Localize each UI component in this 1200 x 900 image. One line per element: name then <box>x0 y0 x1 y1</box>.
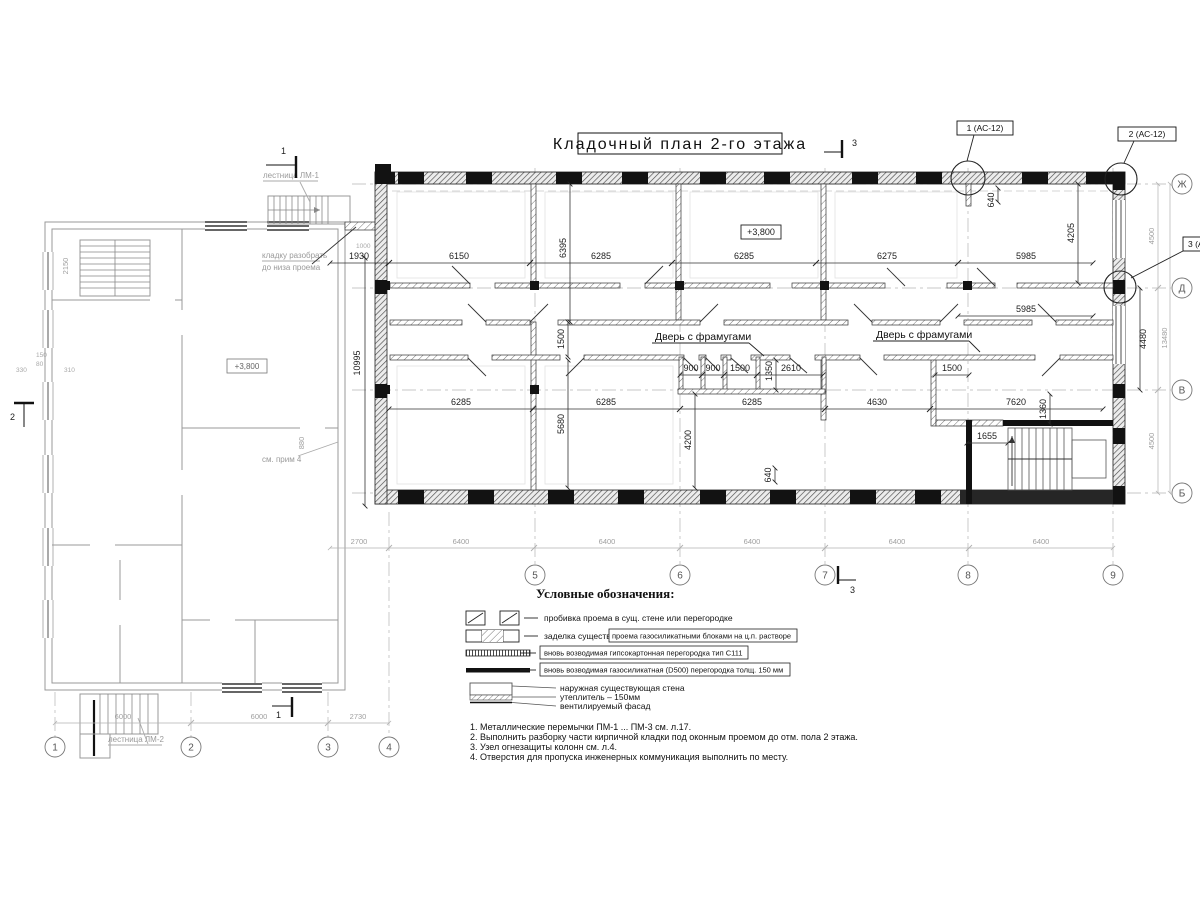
see-note-text: см. прим 4 <box>262 455 302 464</box>
dim-5985-2: 5985 <box>1016 304 1036 314</box>
dim-6400-5: 6400 <box>1033 537 1050 546</box>
section-3-top: 3 <box>852 138 857 148</box>
dim-6150: 6150 <box>449 251 469 261</box>
note-3: 3. Узел огнезащиты колонн см. л.4. <box>470 742 617 752</box>
dim-6000-1: 6000 <box>115 712 132 721</box>
legend-row2-text: заделка существ. <box>544 631 613 641</box>
dim-900b: 900 <box>705 363 720 373</box>
axis-v: В <box>1179 386 1186 397</box>
dim-1350: 1350 <box>764 361 774 381</box>
note-1: 1. Металлические перемычки ПМ-1 ... ПМ-3… <box>470 722 691 732</box>
legend-row4-boxed: вновь возводимая газосиликатная (D500) п… <box>544 666 783 675</box>
dim-4500-2: 4500 <box>1147 433 1156 450</box>
axis-3: 3 <box>325 743 331 754</box>
callout-2: 2 (АС-12) <box>1129 129 1166 139</box>
dim-6400-1: 6400 <box>453 537 470 546</box>
door-label-right-text: Дверь с фрамугами <box>876 329 972 341</box>
main-floor-plan: +3,800 Дверь с фрамугами Дверь с фрамуга… <box>375 164 1125 504</box>
dim-4205: 4205 <box>1066 223 1076 243</box>
dim-330: 330 <box>16 367 27 374</box>
title-text: Кладочный план 2-го этажа <box>553 136 807 153</box>
axis-5: 5 <box>532 571 538 582</box>
dim-6395: 6395 <box>558 238 568 258</box>
axis-9: 9 <box>1110 571 1116 582</box>
drawing-title: Кладочный план 2-го этажа <box>553 133 807 154</box>
demolish-text-1: кладку разобрать <box>262 251 327 260</box>
axis-b: Б <box>1179 489 1186 500</box>
dim-6285-m2: 6285 <box>596 397 616 407</box>
axis-bubbles-bottom-main: 5 6 7 8 9 <box>525 565 1123 585</box>
door-label-left: Дверь с фрамугами <box>652 331 764 356</box>
dim-6275: 6275 <box>877 251 897 261</box>
axis-1: 1 <box>52 743 58 754</box>
demolish-text-2: до низа проема <box>262 263 321 272</box>
callout-3: 3 (АС-12) <box>1188 239 1200 249</box>
dim-4630: 4630 <box>867 397 887 407</box>
door-label-left-text: Дверь с фрамугами <box>655 331 751 343</box>
detail-callouts: 1 (АС-12) 2 (АС-12) 3 (АС-12) <box>951 121 1200 303</box>
axis-8: 8 <box>965 571 971 582</box>
callout-1: 1 (АС-12) <box>967 123 1004 133</box>
dim-640-top: 640 <box>986 192 996 207</box>
section-3-bottom: 3 <box>850 585 855 595</box>
dim-1655: 1655 <box>977 431 997 441</box>
stair-lm2 <box>80 694 158 758</box>
legend-row5-line3: вентилируемый фасад <box>560 701 650 711</box>
axis-2: 2 <box>188 743 194 754</box>
level-mark-main: +3,800 <box>741 225 781 239</box>
note-2: 2. Выполнить разборку части кирпичной кл… <box>470 732 858 742</box>
section-2-left: 2 <box>10 412 15 422</box>
dim-6285-m1: 6285 <box>451 397 471 407</box>
axis-bubbles-bottom-left: 1 2 3 4 <box>45 737 399 757</box>
dim-7620: 7620 <box>1006 397 1026 407</box>
left-interior-stair <box>80 240 150 296</box>
dim-880: 880 <box>297 437 306 450</box>
dim-2150: 2150 <box>61 258 70 275</box>
left-wall-windows <box>40 252 56 638</box>
bottom-wall-windows <box>222 682 322 694</box>
dim-1000: 1000 <box>356 243 371 250</box>
note-4: 4. Отверстия для пропуска инженерных ком… <box>470 752 788 762</box>
dim-5985-t: 5985 <box>1016 251 1036 261</box>
floor-plan-drawing: +3,800 кладку разобрать до низа проема с… <box>0 0 1200 900</box>
dim-6285-m3: 6285 <box>742 397 762 407</box>
dim-640-bot: 640 <box>763 467 773 482</box>
door-label-right: Дверь с фрамугами <box>873 329 980 352</box>
stair-lm1-label: лестница ЛМ-1 <box>263 171 320 180</box>
dim-4480: 4480 <box>1138 329 1148 349</box>
dim-right-total: 13480 <box>1160 328 1169 349</box>
dim-2700: 2700 <box>351 537 368 546</box>
dim-1500-right: 1500 <box>942 363 962 373</box>
level-mark-left: +3,800 <box>227 359 267 373</box>
dim-5680: 5680 <box>556 414 566 434</box>
section-1-top: 1 <box>281 146 286 156</box>
axis-bubbles-right: Ж Д В Б <box>1172 174 1192 503</box>
main-stair <box>1008 428 1106 490</box>
dim-6400-3: 6400 <box>744 537 761 546</box>
dim-6000-2: 6000 <box>251 712 268 721</box>
stair-lm2-label: лестница ЛМ-2 <box>108 735 165 744</box>
dim-1500-wc: 1500 <box>730 363 750 373</box>
drawing-sheet: +3,800 кладку разобрать до низа проема с… <box>0 0 1200 900</box>
axis-4: 4 <box>386 743 392 754</box>
dim-310: 310 <box>64 367 75 374</box>
level-main-text: +3,800 <box>747 227 775 237</box>
notes: 1. Металлические перемычки ПМ-1 ... ПМ-3… <box>470 722 858 762</box>
dim-6400-4: 6400 <box>889 537 906 546</box>
dim-6285-t1: 6285 <box>591 251 611 261</box>
dim-150: 150 <box>36 352 47 359</box>
axis-6: 6 <box>677 571 683 582</box>
dim-6400-2: 6400 <box>599 537 616 546</box>
axis-d: Д <box>1179 284 1186 295</box>
dim-6285-t2: 6285 <box>734 251 754 261</box>
axis-zh: Ж <box>1177 180 1187 191</box>
dim-2610: 2610 <box>781 363 801 373</box>
demolish-annotation: кладку разобрать до низа проема <box>262 227 356 272</box>
dim-1500-corr: 1500 <box>556 329 566 349</box>
top-wall-windows <box>205 219 309 233</box>
dim-4200: 4200 <box>683 430 693 450</box>
dim-1930: 1930 <box>349 251 369 261</box>
dim-4500-1: 4500 <box>1147 228 1156 245</box>
axis-7: 7 <box>822 571 828 582</box>
legend-row1-text: пробивка проема в сущ. стене или перегор… <box>544 613 733 623</box>
left-building-plan: +3,800 кладку разобрать до низа проема с… <box>16 171 377 758</box>
legend-heading: Условные обозначения: <box>536 586 675 601</box>
legend-row2-boxed: проема газосиликатными блоками на ц.п. р… <box>612 632 791 641</box>
dimensions-main: 1930 6150 6285 6285 6275 5985 1000 5985 … <box>330 184 1148 506</box>
legend-row3-boxed: вновь возводимая гипсокартонная перегоро… <box>544 649 743 658</box>
dim-10995: 10995 <box>352 350 362 375</box>
section-1-bottom: 1 <box>276 710 281 720</box>
dimensions-grid: 2700 6400 6400 6400 6400 6400 6000 6000 … <box>55 184 1170 726</box>
dim-80: 80 <box>36 361 44 368</box>
dim-2730: 2730 <box>350 712 367 721</box>
legend: Условные обозначения: пробивка проема в … <box>466 586 797 711</box>
level-left-text: +3,800 <box>235 362 260 371</box>
dim-900a: 900 <box>683 363 698 373</box>
